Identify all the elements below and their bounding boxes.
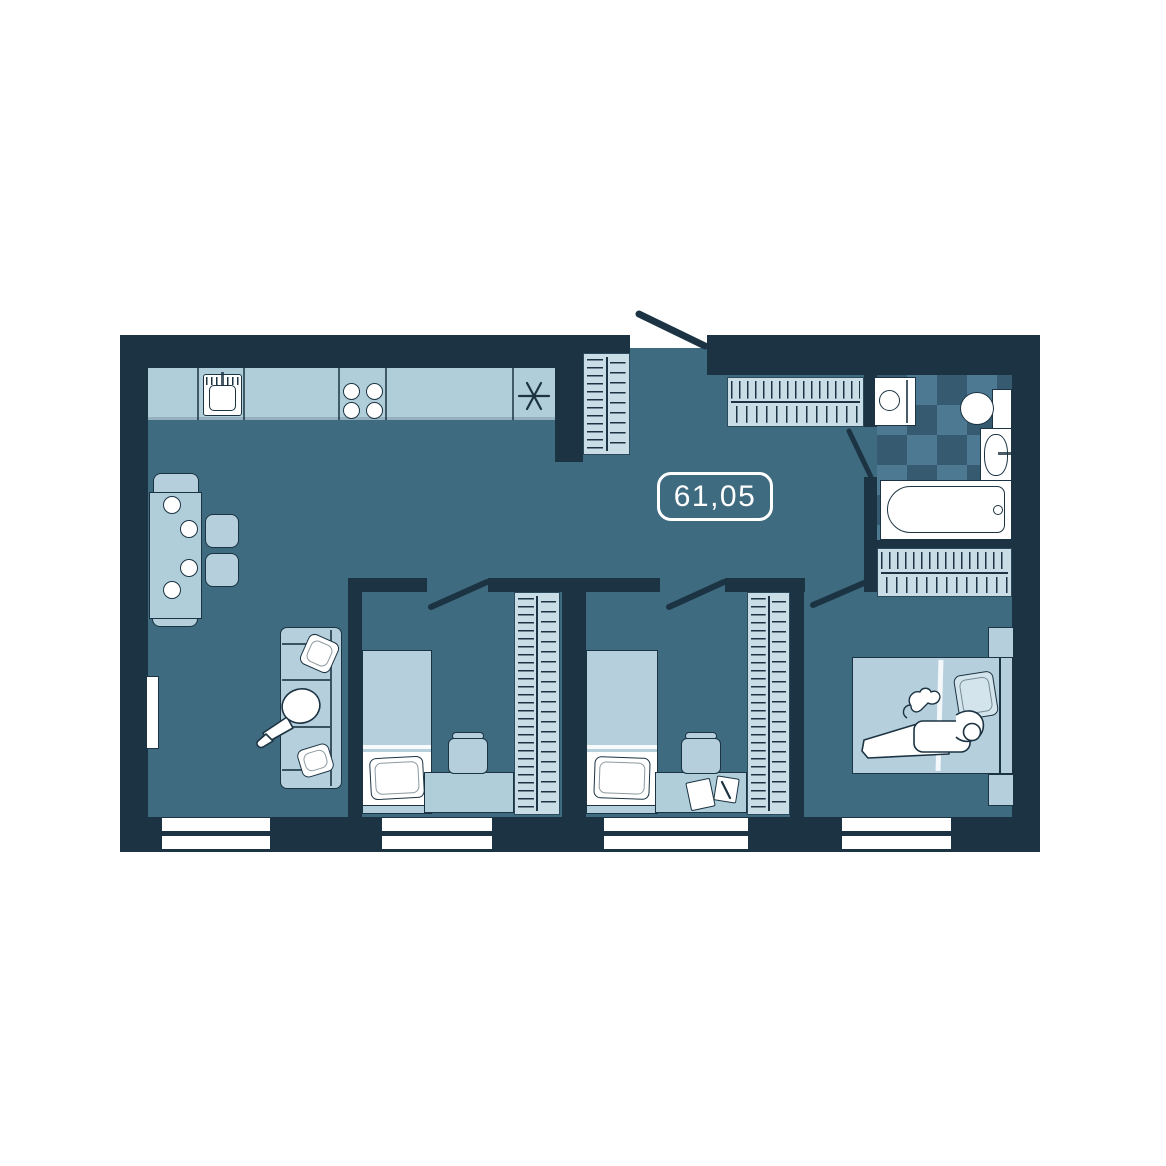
wall-top-kitchen bbox=[120, 335, 583, 368]
paper-sheet bbox=[713, 775, 740, 803]
washing-machine-panel bbox=[906, 380, 908, 423]
counter-divider bbox=[385, 368, 387, 420]
floor-plan: 61,05 bbox=[0, 0, 1166, 1166]
master-headboard bbox=[1000, 657, 1013, 774]
bedroom1-blanket-fold bbox=[363, 745, 431, 749]
master-nightstand bbox=[988, 627, 1014, 659]
wall-bedroom2-master bbox=[790, 578, 804, 817]
window-bedroom2 bbox=[604, 818, 748, 831]
bedroom2-blanket-fold bbox=[587, 745, 657, 749]
stove-burner-icon bbox=[366, 402, 383, 419]
plate bbox=[180, 559, 198, 577]
counter-divider bbox=[338, 368, 340, 420]
bedroom2-wardrobe-hatch bbox=[747, 592, 790, 815]
bedroom1-pillow bbox=[369, 756, 425, 801]
plate bbox=[180, 520, 198, 538]
bedroom1-headboard bbox=[362, 805, 432, 814]
wash-basin-bowl bbox=[984, 434, 1008, 476]
window-living bbox=[162, 836, 270, 849]
window-bedroom1 bbox=[382, 818, 492, 831]
sink-drainer bbox=[206, 377, 218, 385]
stove-burner-icon bbox=[366, 383, 383, 400]
hallway-closet-hatch bbox=[727, 377, 864, 427]
wall-stub-kitchen-entry bbox=[555, 335, 583, 462]
entry-door-leaf bbox=[639, 314, 705, 346]
bedroom2-pillow bbox=[593, 756, 650, 800]
window-bedroom2 bbox=[604, 836, 748, 849]
entry-wardrobe-hatch bbox=[583, 353, 630, 455]
wall-left bbox=[120, 335, 148, 852]
bedroom2-chair bbox=[681, 738, 721, 774]
plate bbox=[163, 496, 181, 514]
stove-burner-icon bbox=[343, 383, 360, 400]
bathtub-inner bbox=[887, 486, 1005, 533]
kitchen-sink-basin bbox=[209, 385, 236, 411]
bedroom1-chair bbox=[448, 738, 488, 774]
master-nightstand bbox=[988, 774, 1014, 806]
window-living bbox=[162, 818, 270, 831]
sink-drainer bbox=[227, 377, 239, 385]
window-bedroom1 bbox=[382, 836, 492, 849]
sink-faucet-icon bbox=[221, 372, 224, 385]
wall-top-entry-niche bbox=[583, 335, 630, 353]
wall-top-right bbox=[707, 335, 1040, 375]
stove-burner-icon bbox=[343, 402, 360, 419]
plate bbox=[163, 581, 181, 599]
area-label: 61,05 bbox=[674, 480, 757, 514]
bedroom1-wardrobe-hatch bbox=[514, 592, 560, 815]
dining-chair bbox=[205, 553, 239, 587]
counter-divider bbox=[243, 368, 245, 420]
wall-bathroom-bottom bbox=[864, 540, 1012, 548]
window-master bbox=[842, 818, 951, 831]
area-badge: 61,05 bbox=[657, 472, 773, 521]
wall-bathroom-lower bbox=[864, 477, 877, 592]
toilet-bowl-icon bbox=[960, 392, 994, 425]
master-pillow bbox=[953, 670, 1000, 721]
bedroom2-headboard bbox=[586, 805, 658, 814]
sofa-seat-line bbox=[282, 679, 330, 681]
bedroom1-desk bbox=[424, 772, 514, 813]
bathtub-drain bbox=[993, 505, 1003, 515]
washing-machine-drum bbox=[879, 390, 900, 411]
basin-faucet-icon bbox=[998, 452, 1012, 455]
master-wardrobe-hatch bbox=[877, 548, 1012, 597]
counter-divider bbox=[512, 368, 514, 420]
balcony-door bbox=[146, 676, 159, 749]
counter-divider bbox=[197, 368, 199, 420]
dining-chair bbox=[205, 514, 239, 548]
wall-living-bedroom1 bbox=[348, 578, 362, 817]
window-master bbox=[842, 836, 951, 849]
wall-right bbox=[1012, 335, 1040, 852]
sofa-seat-line bbox=[282, 726, 330, 728]
wall-bedroom1-bedroom2 bbox=[562, 578, 586, 817]
